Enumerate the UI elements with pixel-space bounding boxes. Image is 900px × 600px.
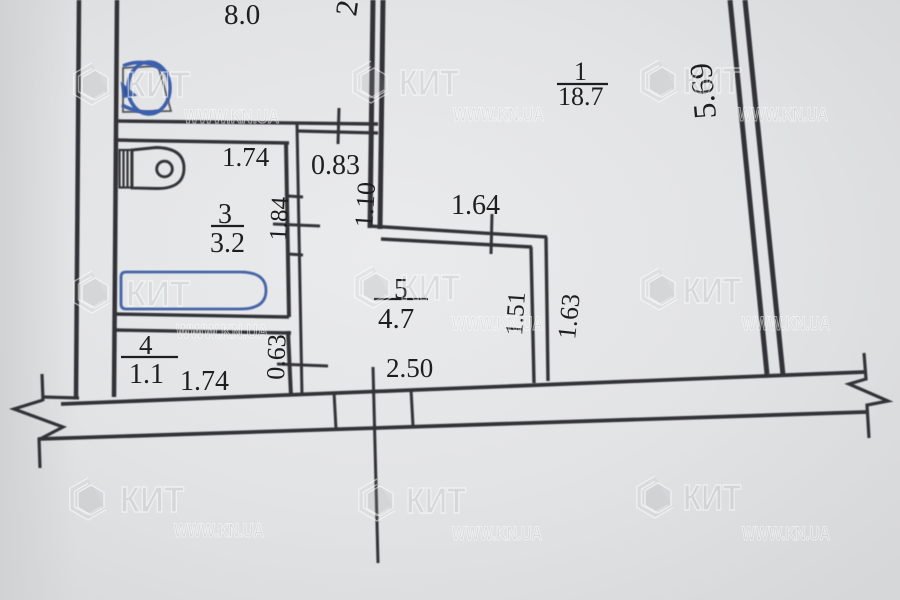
svg-text:КИТ: КИТ <box>126 273 190 314</box>
svg-text:1.64: 1.64 <box>451 190 500 221</box>
svg-text:18.7: 18.7 <box>558 82 604 111</box>
svg-text:1.74: 1.74 <box>222 142 270 172</box>
svg-text:2.50: 2.50 <box>386 353 433 383</box>
svg-text:WWW.KN.UA: WWW.KN.UA <box>174 521 264 542</box>
svg-text:WWW.KN.UA: WWW.KN.UA <box>738 105 828 126</box>
svg-text:WWW.KN.UA: WWW.KN.UA <box>742 314 830 335</box>
svg-text:1.10: 1.10 <box>349 181 381 228</box>
svg-text:3.2: 3.2 <box>210 228 245 259</box>
svg-text:КИТ: КИТ <box>683 270 741 311</box>
svg-text:WWW.KN.UA: WWW.KN.UA <box>176 322 268 343</box>
svg-text:1.63: 1.63 <box>552 292 586 340</box>
svg-text:КИТ: КИТ <box>683 60 741 101</box>
svg-text:0.83: 0.83 <box>311 150 360 181</box>
svg-text:КИТ: КИТ <box>399 62 459 103</box>
svg-text:WWW.KN.UA: WWW.KN.UA <box>184 107 279 128</box>
svg-text:1.84: 1.84 <box>265 196 294 242</box>
svg-text:WWW.KN.UA: WWW.KN.UA <box>453 105 544 126</box>
svg-text:8.0: 8.0 <box>224 0 260 31</box>
svg-text:WWW.KN.UA: WWW.KN.UA <box>742 524 830 545</box>
svg-text:4: 4 <box>139 330 153 360</box>
svg-text:1.74: 1.74 <box>180 366 229 397</box>
svg-text:КИТ: КИТ <box>683 477 741 518</box>
svg-text:КИТ: КИТ <box>406 480 466 521</box>
svg-text:1.1: 1.1 <box>129 359 164 390</box>
svg-text:КИТ: КИТ <box>120 479 184 520</box>
svg-text:КИТ: КИТ <box>400 267 460 308</box>
svg-text:WWW.KN.UA: WWW.KN.UA <box>452 314 543 335</box>
svg-text:WWW.KN.UA: WWW.KN.UA <box>452 524 542 545</box>
svg-text:КИТ: КИТ <box>126 64 190 105</box>
